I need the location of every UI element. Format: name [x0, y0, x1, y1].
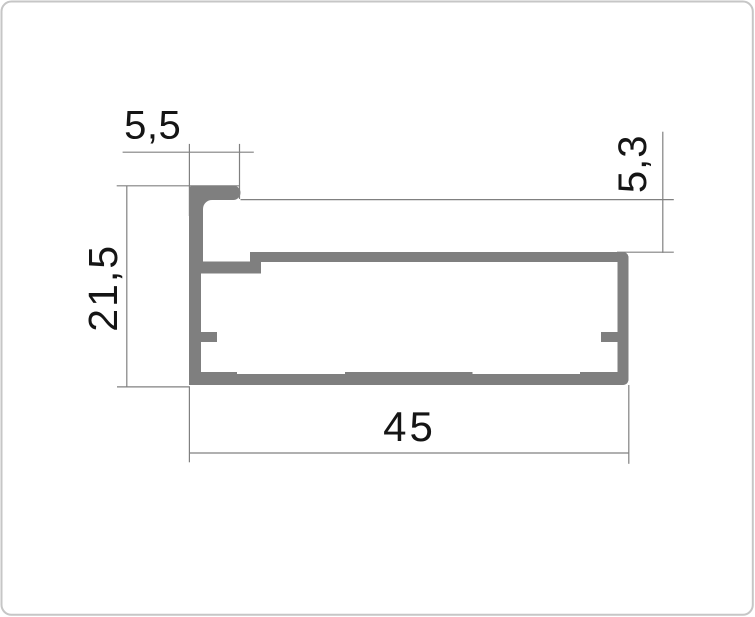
- svg-text:21,5: 21,5: [80, 244, 126, 332]
- svg-text:5,5: 5,5: [124, 104, 181, 148]
- svg-text:45: 45: [383, 403, 436, 450]
- svg-text:5,3: 5,3: [611, 134, 655, 193]
